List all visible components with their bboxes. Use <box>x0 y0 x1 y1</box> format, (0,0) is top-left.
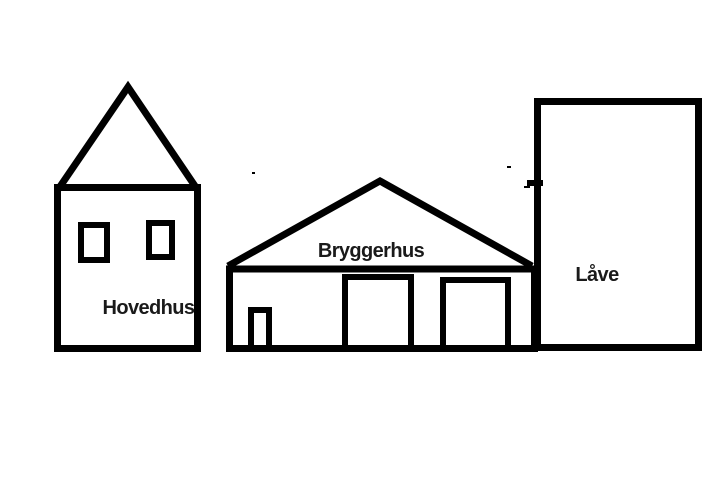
stray-tick-on-laave-wall <box>527 180 543 186</box>
hovedhus-window-left <box>81 225 107 260</box>
laave-body <box>538 102 699 348</box>
hovedhus-label: Hovedhus <box>103 297 195 319</box>
hovedhus-roof <box>57 87 197 191</box>
building-laave: Låve <box>538 102 699 348</box>
bryggerhus-small-door <box>251 310 269 349</box>
stray-marks <box>252 166 543 188</box>
farm-buildings-sketch: Hovedhus Bryggerhus Låve <box>0 0 725 493</box>
building-hovedhus: Hovedhus <box>57 87 198 349</box>
hovedhus-window-right <box>149 223 172 257</box>
drawing-canvas: Hovedhus Bryggerhus Låve <box>0 0 725 493</box>
bryggerhus-large-door-right <box>443 280 508 349</box>
stray-dot-left <box>252 172 255 174</box>
building-bryggerhus: Bryggerhus <box>228 181 535 349</box>
stray-tick-notch <box>524 186 530 188</box>
bryggerhus-label: Bryggerhus <box>318 240 425 262</box>
stray-dot-right <box>507 166 511 168</box>
bryggerhus-large-door-left <box>345 277 411 349</box>
laave-label: Låve <box>575 263 619 286</box>
hovedhus-body <box>58 188 198 349</box>
